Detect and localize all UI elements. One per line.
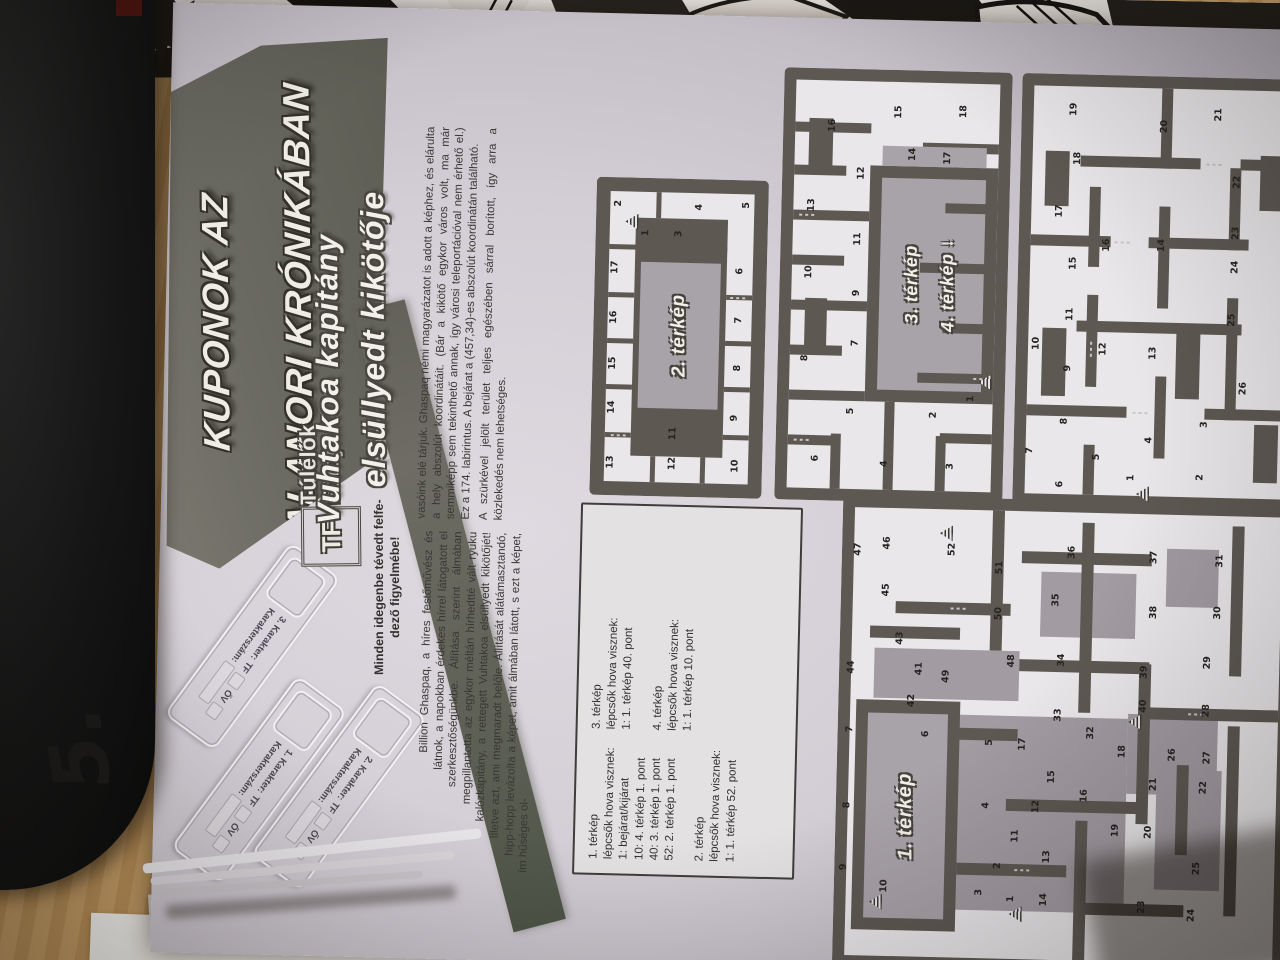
maze-point-number: 18	[1117, 745, 1128, 758]
maze-point-number: 17	[942, 152, 953, 165]
maze-point-number: 6	[810, 455, 821, 462]
maze-point-number: 20	[1143, 826, 1154, 839]
maze-point-number: 41	[913, 662, 924, 675]
maze-point-number: 13	[1041, 850, 1052, 863]
maze-point-number: 18	[1072, 152, 1083, 165]
maze-map-2: 2. térkép 1234567891011121314151617	[589, 177, 769, 499]
maze-point-number: 26	[1166, 748, 1177, 761]
maze-point-number: 3	[973, 889, 984, 896]
maze-point-number: 6	[920, 730, 931, 737]
maze-point-number: 7	[733, 317, 744, 324]
maze-point-number: 7	[850, 340, 861, 347]
maze-point-number: 11	[1064, 308, 1075, 321]
maze-point-number: 4	[1143, 437, 1154, 444]
maze-point-number: 39	[1138, 665, 1149, 678]
maze-point-number: 5	[845, 408, 856, 415]
maze-point-number: 18	[958, 105, 969, 118]
map4-overlay: 1234567891011121314151617181920212223242…	[1012, 73, 1280, 512]
maze-point-number: 16	[827, 119, 838, 132]
maze-point-number: 8	[841, 802, 852, 809]
maze-point-number: 52	[946, 543, 957, 556]
maze-point-number: 5	[741, 202, 752, 209]
maze-point-number: 11	[667, 427, 678, 440]
maze-point-number: 32	[1085, 726, 1096, 739]
maze-point-number: 9	[851, 290, 862, 297]
maze-point-number: 13	[806, 198, 817, 211]
maze-point-number: 19	[1068, 103, 1079, 116]
maze-point-number: 8	[799, 354, 810, 361]
maze-point-number: 40	[1138, 699, 1149, 712]
maze-point-number: 2	[928, 412, 939, 419]
maze-point-number: 3	[1199, 421, 1210, 428]
map3-label: 3. térkép	[901, 245, 923, 324]
maze-point-number: 29	[1202, 656, 1213, 669]
ladder-entrance-icon	[1136, 486, 1149, 502]
maze-point-number: 26	[1237, 382, 1248, 395]
maze-point-number: 16	[1078, 789, 1089, 802]
maze-point-number: 27	[1201, 751, 1212, 764]
maze-point-number: 6	[734, 268, 745, 275]
maze-point-number: 4	[980, 802, 991, 809]
maze-point-number: 5	[984, 739, 995, 746]
maze-point-number: 25	[1226, 313, 1237, 326]
ladder-entrance-icon	[869, 894, 882, 910]
map4-label-text: 4. térkép	[937, 253, 958, 332]
maze-point-number: 9	[838, 863, 849, 870]
maze-point-number: 31	[1214, 554, 1225, 567]
map2-label: 2. térkép	[668, 294, 691, 377]
maze-point-number: 48	[1006, 654, 1017, 667]
maze-point-number: 2	[1194, 474, 1205, 481]
map2-overlay: 2. térkép 1234567891011121314151617	[589, 177, 769, 499]
maze-point-number: 23	[1230, 227, 1241, 240]
map3-overlay: 3. térkép 4. térkép ↓ 123456789101112131…	[774, 67, 1012, 504]
photo-scene: KUPONOK AZ ALANORI KRÓNIKÁBAN 1. Karakte…	[0, 0, 1280, 960]
maze-point-number: 20	[1159, 120, 1170, 133]
maze-point-number: 10	[1030, 337, 1041, 350]
stairs-legend-box: 1. térkép lépcsők hova visznek: 1: bejár…	[572, 502, 803, 879]
ladder-entrance-icon	[1128, 714, 1141, 730]
maze-point-number: 1	[965, 395, 976, 402]
maze-point-number: 30	[1212, 606, 1223, 619]
maze-point-number: 9	[729, 415, 740, 422]
maze-point-number: 50	[993, 607, 1004, 620]
maze-point-number: 17	[609, 260, 620, 273]
maze-point-number: 11	[852, 232, 863, 245]
article-text-3: A szürkével jelölt terület teljes egészé…	[477, 128, 516, 521]
maze-point-number: 28	[1201, 704, 1212, 717]
maze-point-number: 15	[893, 105, 904, 118]
maze-point-number: 14	[1156, 239, 1167, 252]
maze-point-number: 21	[1148, 778, 1159, 791]
maze-point-number: 44	[846, 660, 857, 673]
maze-point-number: 3	[673, 230, 684, 237]
ladder-entrance-icon	[1008, 906, 1021, 922]
maze-point-number: 16	[608, 310, 619, 323]
maze-point-number: 1	[640, 229, 651, 236]
maze-point-number: 4	[694, 204, 705, 211]
maze-point-number: 36	[1066, 546, 1077, 559]
maze-point-number: 15	[1046, 770, 1057, 783]
magazine-page: KUPONOK AZ ALANORI KRÓNIKÁBAN 1. Karakte…	[150, 2, 1280, 960]
maze-point-number: 15	[607, 356, 618, 369]
maze-point-number: 7	[844, 726, 855, 733]
maze-point-number: 51	[994, 561, 1005, 574]
maze-point-number: 5	[1091, 454, 1102, 461]
article-text-2: vasóink elé tárjuk. Ghaspaq némi magyará…	[415, 126, 483, 519]
ladder-entrance-icon	[940, 525, 953, 541]
maze-point-number: 37	[1148, 551, 1159, 564]
maze-point-number: 13	[604, 455, 615, 468]
map4-label: 4. térkép ↓	[937, 238, 959, 332]
article-column-1: Billion Ghaspaq, a híres festőművész és …	[413, 531, 580, 907]
maze-point-number: 12	[1030, 800, 1041, 813]
maze-point-number: 38	[1148, 606, 1159, 619]
maze-point-number: 34	[1056, 653, 1067, 666]
maze-point-number: 12	[1097, 342, 1108, 355]
maze-point-number: 10	[803, 265, 814, 278]
maze-point-number: 42	[906, 694, 917, 707]
lead-line2: dező figyelmébe!	[388, 536, 402, 637]
maze-point-number: 46	[882, 536, 893, 549]
maze-point-number: 45	[880, 583, 891, 596]
map1-label: 1. térkép	[894, 773, 918, 860]
maze-point-number: 10	[878, 879, 889, 892]
maze-point-number: 43	[894, 631, 905, 644]
maze-point-number: 19	[1110, 824, 1121, 837]
maze-point-number: 11	[1009, 829, 1020, 842]
maze-point-number: 17	[1017, 738, 1028, 751]
article-column-2: vasóink elé tárjuk. Ghaspaq némi magyará…	[415, 126, 590, 522]
maze-point-number: 6	[1054, 481, 1065, 488]
maze-point-number: 12	[666, 457, 677, 470]
maze-point-number: 1	[1125, 474, 1136, 481]
maze-point-number: 17	[1054, 204, 1065, 217]
article-title-line1: Vuhtakoa kapitány	[309, 234, 347, 525]
maze-point-number: 14	[606, 400, 617, 413]
legend-column-2: 3. térkép lépcsők hova visznek: 1: 1. té…	[590, 617, 787, 734]
maze-point-number: 15	[1067, 257, 1078, 270]
maze-point-number: 8	[1059, 418, 1070, 425]
red-corner-detail	[116, 0, 142, 16]
maze-point-number: 9	[1062, 365, 1073, 372]
maze-point-number: 2	[992, 862, 1003, 869]
maze-point-number: 4	[879, 460, 890, 467]
ladder-entrance-icon	[625, 213, 638, 229]
kicker-line-1: KUPONOK AZ	[194, 191, 239, 452]
maze-point-number: 8	[732, 365, 743, 372]
down-arrow-icon: ↓	[937, 238, 957, 248]
lead-line1: Minden idegenbe tévedt felfe-	[372, 499, 386, 675]
maze-point-number: 21	[1213, 108, 1224, 121]
maze-point-number: 13	[1147, 347, 1158, 360]
maze-map-3: 3. térkép 4. térkép ↓ 123456789101112131…	[774, 67, 1012, 504]
maze-point-number: 24	[1229, 261, 1240, 274]
maze-point-number: 2	[613, 200, 624, 207]
legend-column-1: 1. térkép lépcsők hova visznek: 1: bejár…	[586, 747, 783, 864]
maze-map-4: 1234567891011121314151617181920212223242…	[1012, 73, 1280, 512]
maze-point-number: 14	[907, 148, 918, 161]
maze-point-number: 47	[852, 542, 863, 555]
maze-point-number: 22	[1198, 781, 1209, 794]
maze-point-number: 14	[1038, 893, 1049, 906]
maze-point-number: 3	[945, 463, 956, 470]
maze-point-number: 7	[1024, 447, 1035, 454]
maze-point-number: 33	[1052, 708, 1063, 721]
maze-point-number: 10	[729, 459, 740, 472]
maze-point-number: 35	[1050, 593, 1061, 606]
maze-point-number: 12	[856, 166, 867, 179]
handwritten-note: 5.	[23, 679, 192, 790]
maze-point-number: 49	[940, 670, 951, 683]
maze-point-number: 22	[1231, 176, 1242, 189]
maze-point-number: 16	[1101, 238, 1112, 251]
lead-in-text: Minden idegenbe tévedt felfe- dező figye…	[371, 475, 404, 700]
ladder-entrance-icon	[978, 374, 991, 390]
article-title-line2: elsüllyedt kikötője	[354, 191, 393, 488]
maze-point-number: 1	[1005, 896, 1016, 903]
